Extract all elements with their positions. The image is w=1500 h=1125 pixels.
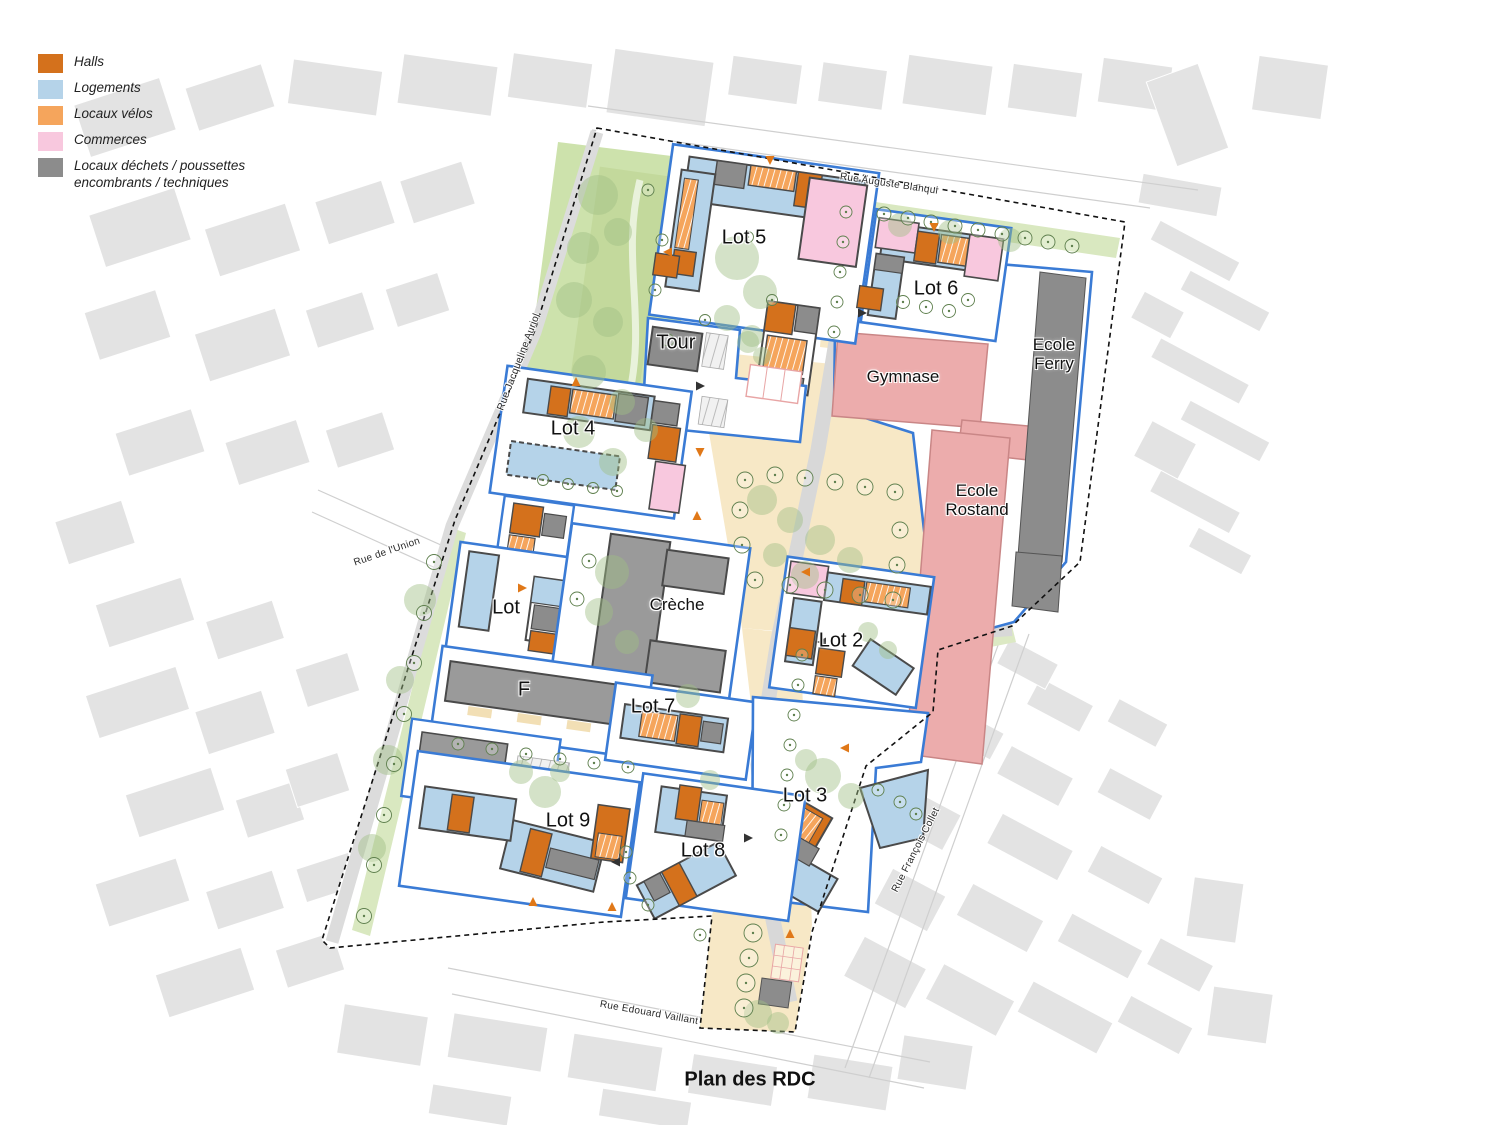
halls-swatch [38,54,63,73]
legend-item-halls: Halls [38,54,270,73]
logements-swatch [38,80,63,99]
legend-item-logements: Logements [38,80,270,99]
label-lot-3: Lot 3 [783,785,827,808]
label-lot-2: Lot 2 [819,630,863,653]
label-lot-9: Lot 9 [546,810,590,833]
label-gymnase: Gymnase [867,367,940,387]
label-lot-8: Lot 8 [681,840,725,863]
legend: Halls Logements Locaux vélos Commerces L… [38,54,270,199]
legend-label: Locaux vélos [74,106,153,123]
legend-label: Commerces [74,132,147,149]
legend-label: Logements [74,80,141,97]
plan-des-rdc-page: Halls Logements Locaux vélos Commerces L… [0,0,1500,1125]
label-lot-6: Lot 6 [914,278,958,301]
lot-4-area [490,366,696,519]
label-tour: Tour [657,332,696,355]
label-ecole-rostand: Ecole Rostand [937,481,1017,519]
legend-item-locaux-velos: Locaux vélos [38,106,270,125]
locaux-velos-swatch [38,106,63,125]
legend-label: Halls [74,54,104,71]
map-title: Plan des RDC [684,1069,815,1092]
commerces-swatch [38,132,63,151]
label-lot-4: Lot 4 [551,418,595,441]
label-ecole-ferry: Ecole Ferry [1022,335,1086,373]
locaux-dechets-swatch [38,158,63,177]
label-lot-1: Lot [492,597,520,620]
legend-item-commerces: Commerces [38,132,270,151]
legend-item-locaux-dechets: Locaux déchets / poussettes encombrants … [38,158,270,192]
legend-label: Locaux déchets / poussettes encombrants … [74,158,270,192]
label-lot-7: Lot 7 [631,696,675,719]
label-f-building: F [518,679,530,702]
basketball-court [746,365,802,404]
play-court [771,944,803,982]
label-creche: Crèche [650,595,705,615]
label-lot-5: Lot 5 [722,227,766,250]
